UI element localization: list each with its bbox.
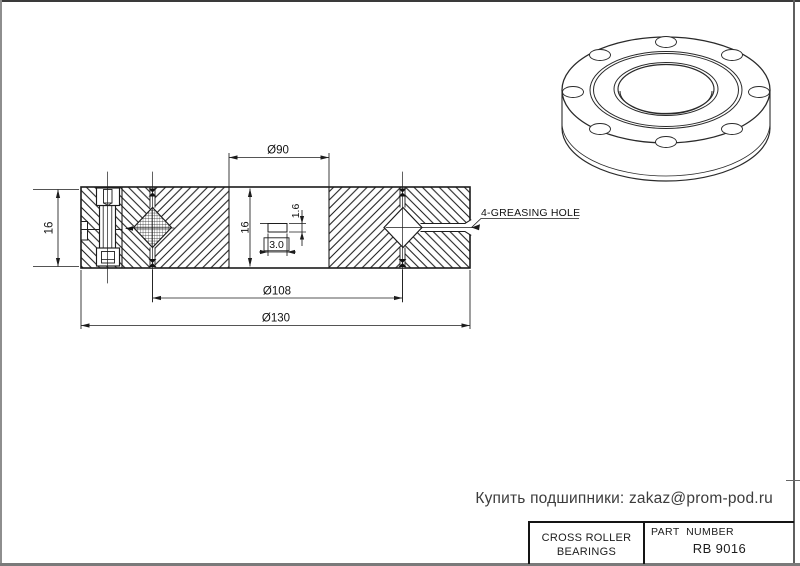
dim-pitch-text: Ø108 xyxy=(263,286,291,298)
dim-groove-width-text: 3.0 xyxy=(269,239,284,251)
dim-bore-height-text: 16 xyxy=(240,221,252,233)
part-number-label: PART NUMBER xyxy=(651,526,734,538)
dim-outer-text: Ø130 xyxy=(262,313,290,325)
title-block-border-top xyxy=(528,521,794,523)
contact-line: Купить подшипники: zakaz@prom-pod.ru xyxy=(418,490,773,508)
dim-section-height: 16 xyxy=(33,190,79,267)
clamping-bolt xyxy=(97,188,120,266)
part-number-value: RB 9016 xyxy=(645,541,794,556)
inner-ring-3d xyxy=(590,52,742,129)
technical-drawing: Ø90 Ø108 Ø130 xyxy=(0,0,800,566)
dim-bore-diameter: Ø90 xyxy=(229,145,329,188)
groove-detail xyxy=(268,224,287,233)
bore-inner-wall xyxy=(620,91,712,114)
bearing-3d-view xyxy=(562,37,770,182)
product-name-line1: CROSS ROLLER xyxy=(542,531,632,545)
drawing-sheet: Ø90 Ø108 Ø130 xyxy=(0,0,800,566)
dim-outer-diameter: Ø130 xyxy=(81,270,470,329)
dim-section-height-text: 16 xyxy=(44,222,56,235)
sheet-border-top xyxy=(0,0,800,2)
product-name-line2: BEARINGS xyxy=(557,545,616,559)
sheet-border-right xyxy=(793,0,795,566)
product-name-cell: CROSS ROLLER BEARINGS xyxy=(530,528,643,561)
sheet-border-left xyxy=(0,0,2,566)
dim-groove-height: 1.6 xyxy=(289,204,306,246)
dim-groove-height-text: 1.6 xyxy=(290,204,302,219)
dim-bore-text: Ø90 xyxy=(267,145,289,157)
dim-pitch-diameter: Ø108 xyxy=(153,270,403,302)
greasing-hole-label: 4-GREASING HOLE xyxy=(481,207,580,219)
bearing-section-view xyxy=(81,172,477,302)
fold-mark xyxy=(786,480,800,481)
dim-groove-width: 3.0 xyxy=(259,234,296,257)
greasing-hole-callout: 4-GREASING HOLE xyxy=(472,207,581,230)
dim-bore-height: 16 xyxy=(240,189,253,267)
